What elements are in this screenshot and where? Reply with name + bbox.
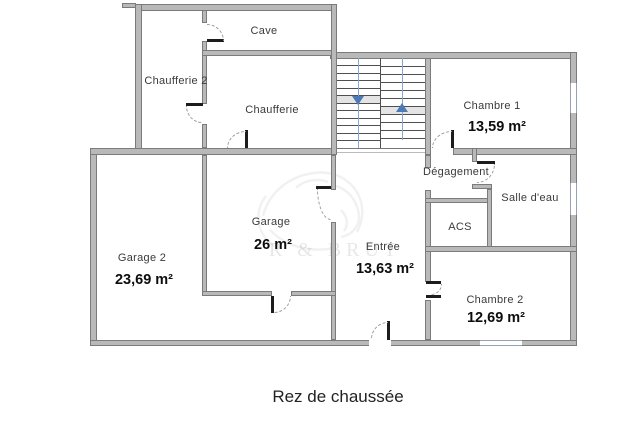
wall bbox=[202, 10, 207, 23]
door-arc-chambre1 bbox=[432, 131, 452, 148]
door-arc-entree bbox=[371, 322, 388, 339]
stair-tread bbox=[337, 88, 381, 89]
wall bbox=[90, 148, 337, 155]
door-arc-chaufferie bbox=[227, 131, 246, 148]
room-area-garage: 26 m² bbox=[254, 237, 292, 253]
stair-tread bbox=[381, 130, 425, 131]
door-arc-chaufferie2 bbox=[186, 106, 202, 123]
room-label-garage2: Garage 2 bbox=[118, 252, 166, 264]
stairs-down-arrow-icon bbox=[352, 96, 364, 105]
wall bbox=[202, 291, 272, 296]
room-area-entree: 13,63 m² bbox=[356, 261, 414, 277]
room-area-chambre1: 13,59 m² bbox=[468, 119, 526, 135]
room-area-chambre2: 12,69 m² bbox=[467, 310, 525, 326]
stair-tread bbox=[337, 73, 381, 74]
room-label-salle-deau: Salle d'eau bbox=[501, 192, 558, 204]
wall bbox=[202, 50, 337, 56]
stair-tread bbox=[381, 82, 425, 83]
room-label-degagement: Dégagement bbox=[423, 166, 489, 178]
stair-tread bbox=[337, 65, 381, 66]
stairs-bottom-edge bbox=[337, 148, 425, 149]
room-label-chaufferie: Chaufferie bbox=[245, 104, 299, 116]
stair-tread bbox=[381, 98, 425, 99]
wall bbox=[425, 198, 492, 203]
room-label-garage: Garage bbox=[252, 216, 291, 228]
room-label-chaufferie2: Chaufferie 2 bbox=[144, 75, 207, 87]
wall bbox=[425, 58, 431, 155]
window-chambre2 bbox=[480, 340, 522, 346]
wall bbox=[472, 184, 492, 189]
wall bbox=[425, 246, 577, 252]
stair-tread bbox=[381, 90, 425, 91]
stair-tread bbox=[381, 74, 425, 75]
stairs-divider bbox=[380, 58, 381, 148]
wall bbox=[202, 155, 207, 295]
door-arc-chambre2 bbox=[431, 284, 442, 295]
stairs-guide-line bbox=[402, 58, 403, 140]
stair-tread bbox=[337, 118, 381, 119]
wall bbox=[425, 190, 431, 282]
wall bbox=[487, 189, 492, 248]
room-label-cave: Cave bbox=[251, 25, 278, 37]
wall bbox=[331, 155, 336, 190]
stair-tread bbox=[381, 66, 425, 67]
room-label-chambre2: Chambre 2 bbox=[466, 294, 523, 306]
door-arc-cave bbox=[207, 24, 224, 41]
wall bbox=[135, 4, 142, 155]
wall bbox=[331, 222, 336, 340]
wall bbox=[122, 3, 136, 8]
floor-plan: R & BRUT bbox=[0, 0, 642, 426]
door-leaf-chambre2 bbox=[426, 295, 441, 298]
window-chambre1 bbox=[570, 83, 577, 113]
wall bbox=[330, 52, 577, 59]
wall bbox=[90, 148, 97, 346]
stair-tread bbox=[337, 140, 381, 141]
wall bbox=[202, 124, 207, 148]
wall bbox=[425, 300, 431, 340]
floor-title: Rez de chaussée bbox=[272, 387, 403, 407]
stair-tread bbox=[381, 114, 425, 115]
stair-tread bbox=[381, 122, 425, 123]
stair-tread bbox=[337, 80, 381, 81]
stairs-up-arrow-icon bbox=[396, 103, 408, 112]
room-label-entree: Entrée bbox=[366, 241, 400, 253]
stair-tread bbox=[337, 133, 381, 134]
room-label-acs: ACS bbox=[448, 221, 472, 233]
door-arc-garage2 bbox=[274, 296, 291, 313]
wall bbox=[472, 148, 477, 162]
room-area-garage2: 23,69 m² bbox=[115, 272, 173, 288]
stair-tread bbox=[381, 138, 425, 139]
stairs-bottom-edge bbox=[337, 152, 425, 153]
stair-tread bbox=[337, 110, 381, 111]
front-door-opening bbox=[369, 339, 391, 347]
room-label-chambre1: Chambre 1 bbox=[463, 100, 520, 112]
wall bbox=[291, 291, 336, 296]
wall bbox=[135, 4, 337, 11]
stair-tread bbox=[337, 125, 381, 126]
window-salle-deau bbox=[570, 183, 577, 215]
